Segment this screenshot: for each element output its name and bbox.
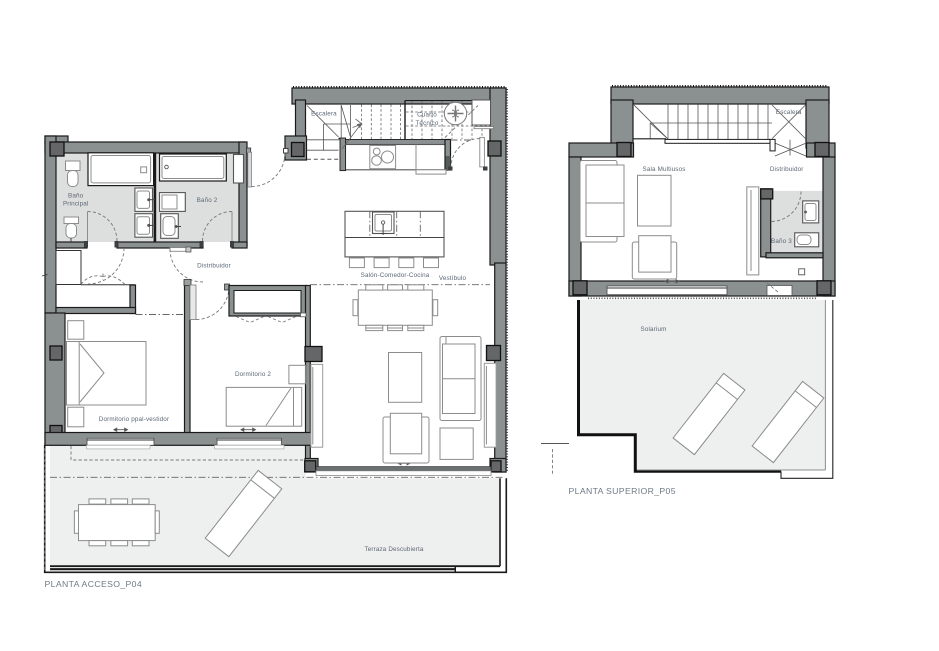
svg-text:Vestíbulo: Vestíbulo	[439, 275, 467, 282]
svg-text:Baño: Baño	[68, 193, 84, 200]
svg-text:Técnico: Técnico	[415, 120, 438, 127]
svg-text:Cuarto: Cuarto	[417, 112, 437, 119]
svg-text:PLANTA ACCESO_P04: PLANTA ACCESO_P04	[45, 579, 143, 589]
svg-text:Terraza Descubierta: Terraza Descubierta	[364, 546, 424, 553]
svg-text:PLANTA SUPERIOR_P05: PLANTA SUPERIOR_P05	[569, 486, 676, 496]
svg-text:Principal: Principal	[63, 201, 89, 208]
svg-text:Distribuidor: Distribuidor	[770, 166, 804, 173]
svg-text:Salón-Comedor-Cocina: Salón-Comedor-Cocina	[361, 272, 430, 279]
svg-text:Escalera: Escalera	[311, 111, 337, 118]
svg-text:Baño 3: Baño 3	[771, 238, 792, 245]
svg-text:Baño 2: Baño 2	[197, 197, 218, 204]
svg-text:Dormitorio 2: Dormitorio 2	[235, 371, 271, 378]
svg-text:Dormitorio ppal-vestidor: Dormitorio ppal-vestidor	[99, 416, 169, 423]
svg-text:Sala Multiusos: Sala Multiusos	[642, 166, 685, 173]
svg-text:Solarium: Solarium	[640, 326, 666, 333]
svg-text:Distribuidor: Distribuidor	[197, 263, 231, 270]
svg-text:Escalera: Escalera	[776, 109, 802, 116]
